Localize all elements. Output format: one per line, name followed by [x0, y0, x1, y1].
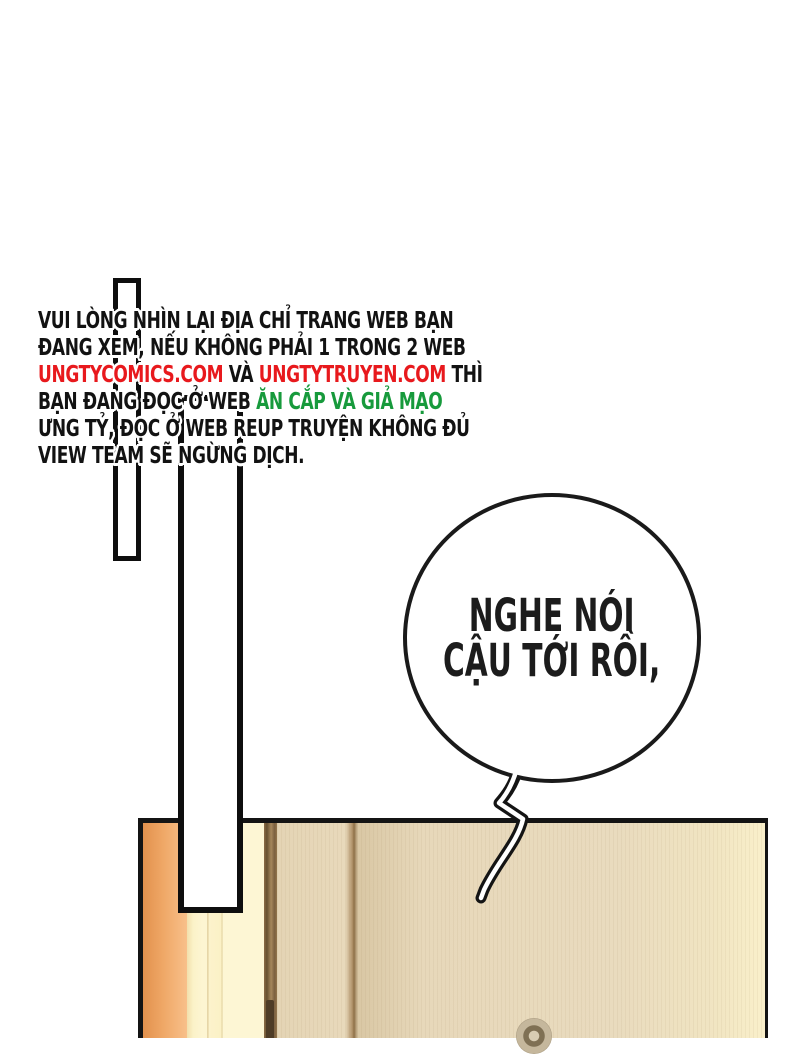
speech-bubble: NGHE NÓI CẬU TỚI RỒI,	[403, 493, 701, 783]
speech-bubble-text-line1: NGHE NÓI	[469, 593, 635, 638]
speech-bubble-text-line2: CẬU TỚI RỒI,	[443, 638, 660, 683]
notice-text: VUI LÒNG NHÌN LẠI ĐỊA CHỈ TRANG WEB BẠNĐ…	[38, 308, 639, 470]
door-hinge-shadow	[266, 1000, 274, 1038]
door-divider-brown-strip	[264, 823, 277, 1038]
door-knob	[516, 1018, 552, 1054]
notice-line: BẠN ĐANG ĐỌC Ở WEB ĂN CẮP VÀ GIẢ MẠO	[38, 389, 639, 416]
notice-line: ƯNG TỶ, ĐỌC Ở WEB REUP TRUYỆN KHÔNG ĐỦ	[38, 416, 639, 443]
notice-line: UNGTYCOMICS.COM VÀ UNGTYTRUYEN.COM THÌ	[38, 362, 639, 389]
panel-bar-wide	[178, 395, 243, 913]
notice-line: VIEW TEAM SẼ NGỪNG DỊCH.	[38, 443, 639, 470]
notice-line: VUI LÒNG NHÌN LẠI ĐỊA CHỈ TRANG WEB BẠN	[38, 308, 639, 335]
comic-page: { "page": { "background_color": "#ffffff…	[0, 0, 793, 1037]
notice-line: ĐANG XEM, NẾU KHÔNG PHẢI 1 TRONG 2 WEB	[38, 335, 639, 362]
door-main-panel	[277, 823, 765, 1038]
